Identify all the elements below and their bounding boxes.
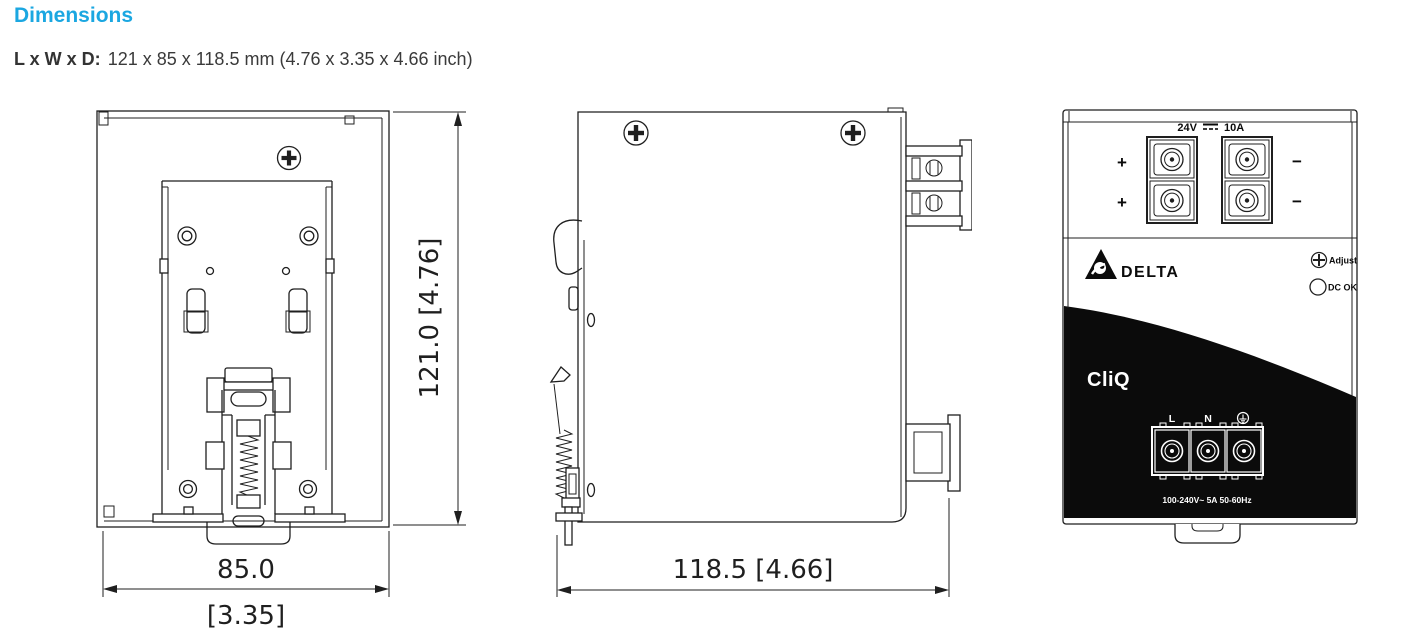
size-spec: L x W x D:121 x 85 x 118.5 mm (4.76 x 3.… bbox=[14, 49, 473, 70]
output-rating: 24V 10A bbox=[1177, 122, 1244, 134]
depth-dimension: 118.5 [4.66] bbox=[557, 498, 949, 597]
height-dim-label: 121.0 [4.76] bbox=[415, 238, 445, 399]
page-title: Dimensions bbox=[14, 4, 133, 28]
side-output-terminals bbox=[906, 140, 972, 230]
plus-label: + bbox=[1117, 193, 1127, 212]
din-clip-assembly bbox=[153, 368, 345, 544]
brand-wordmark: DELTA bbox=[1121, 264, 1179, 281]
neutral-label: N bbox=[1204, 413, 1212, 425]
output-terminal-block-left bbox=[1147, 137, 1197, 223]
dc-symbol-icon bbox=[1203, 125, 1218, 130]
side-case-outline bbox=[578, 108, 906, 522]
width-dim-inch-label: [3.35] bbox=[207, 601, 285, 631]
width-dim-mm-label: 85.0 bbox=[217, 555, 275, 585]
side-view-drawing: 118.5 [4.66] bbox=[540, 103, 972, 642]
clip-spring bbox=[240, 436, 258, 496]
dc-ok-led-icon bbox=[1310, 279, 1326, 295]
output-voltage-label: 24V bbox=[1177, 122, 1197, 134]
back-case-outline bbox=[97, 111, 389, 527]
dimensions-page: Dimensions L x W x D:121 x 85 x 118.5 mm… bbox=[0, 0, 1427, 642]
size-value: 121 x 85 x 118.5 mm (4.76 x 3.35 x 4.66 … bbox=[108, 49, 473, 69]
output-terminal-block-right bbox=[1222, 137, 1272, 223]
height-dimension: 121.0 [4.76] bbox=[393, 112, 466, 525]
size-label: L x W x D: bbox=[14, 49, 101, 69]
series-logo: CliQ bbox=[1087, 369, 1130, 391]
adjust-potentiometer-icon bbox=[1312, 253, 1327, 268]
mounting-hole bbox=[178, 227, 318, 498]
depth-dim-label: 118.5 [4.66] bbox=[673, 555, 834, 585]
side-din-clip-profile bbox=[551, 220, 595, 545]
front-swoosh-panel bbox=[1064, 306, 1356, 518]
line-label: L bbox=[1169, 413, 1176, 425]
front-din-release-tab bbox=[1175, 524, 1240, 543]
minus-label: − bbox=[1292, 192, 1302, 211]
din-bracket-plate bbox=[160, 181, 334, 514]
dc-ok-label: DC OK bbox=[1328, 283, 1358, 293]
bracket-slot bbox=[184, 289, 310, 333]
phillips-screw-icon bbox=[624, 121, 865, 145]
side-input-terminal bbox=[906, 415, 960, 491]
front-view-drawing: 24V 10A bbox=[1040, 103, 1380, 563]
output-current-label: 10A bbox=[1224, 122, 1244, 134]
minus-label: − bbox=[1292, 152, 1302, 171]
width-dimension: 85.0 [3.35] bbox=[103, 531, 389, 631]
delta-logo: DELTA bbox=[1085, 249, 1179, 281]
phillips-screw-icon bbox=[278, 147, 301, 170]
back-view-drawing: 121.0 [4.76] 85.0 [3.35] bbox=[85, 103, 495, 642]
adjust-label: Adjust bbox=[1329, 256, 1357, 266]
plus-label: + bbox=[1117, 153, 1127, 172]
polarity-labels: + + − − bbox=[1117, 152, 1302, 212]
input-rating-label: 100-240V~ 5A 50-60Hz bbox=[1162, 495, 1251, 505]
